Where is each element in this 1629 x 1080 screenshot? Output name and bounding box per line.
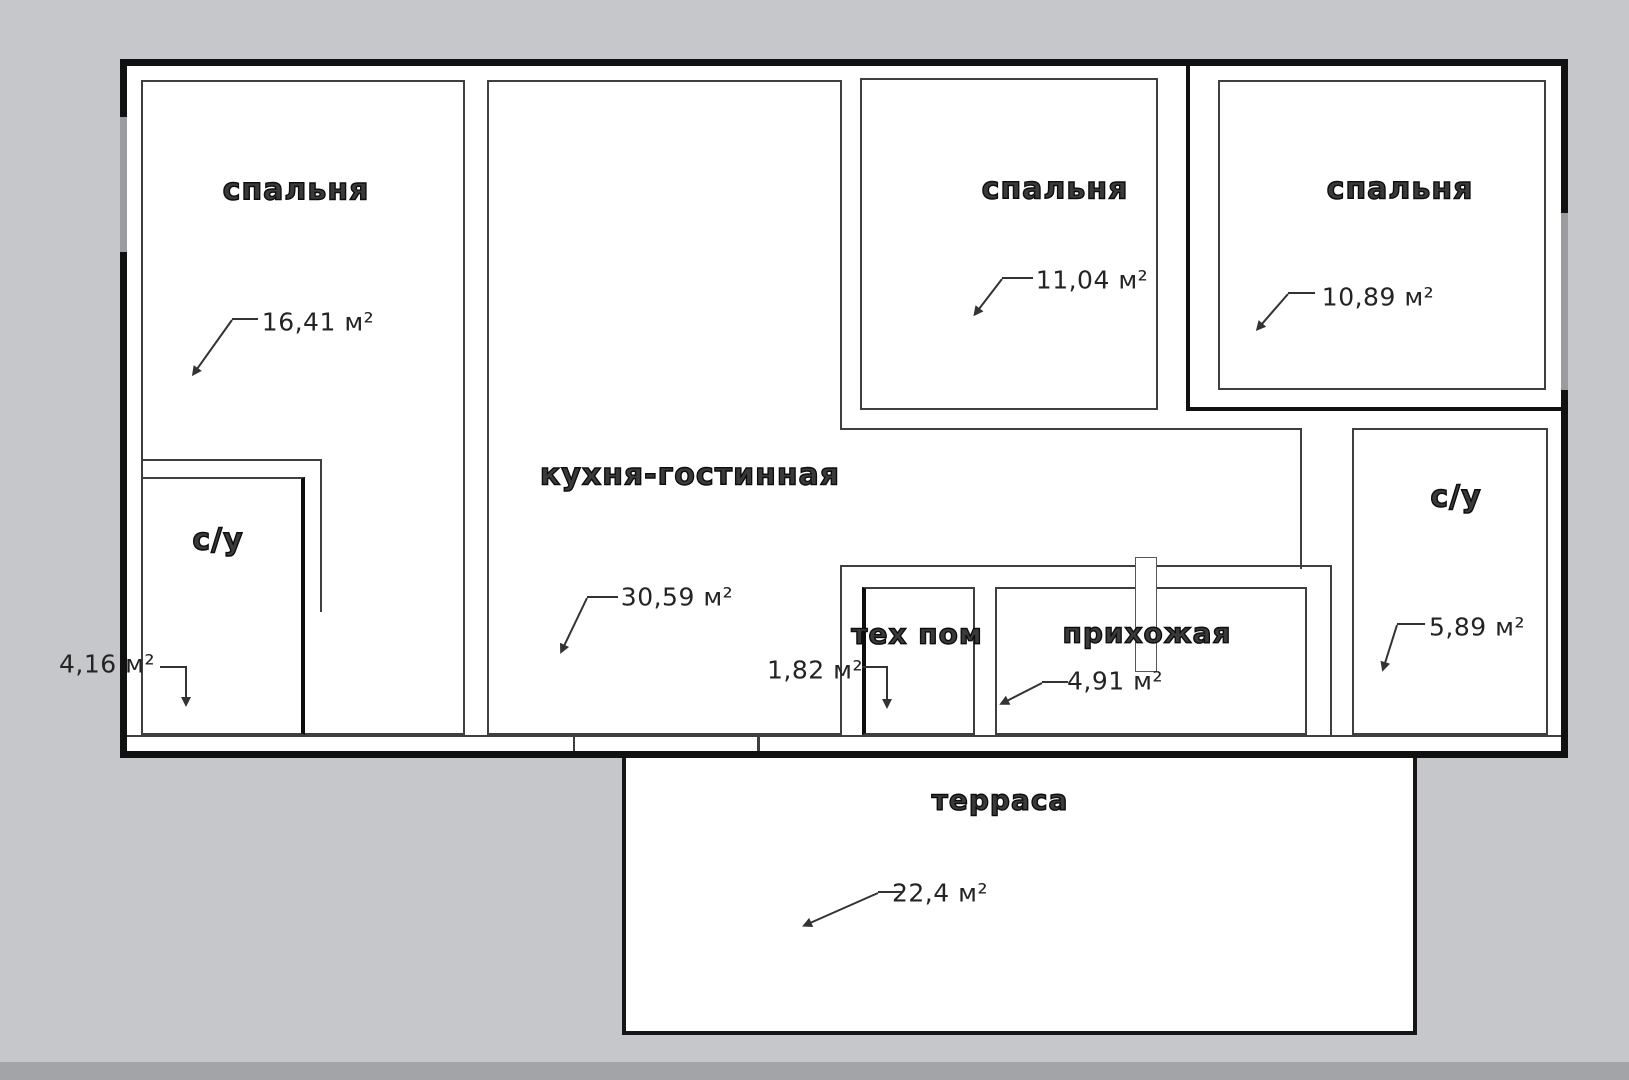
room-label-terrace: терраса: [932, 784, 1069, 817]
area-label-kitchen-living: 30,59 м²: [621, 583, 733, 612]
room-label-bathroom-2: с/у: [1430, 480, 1481, 515]
room-label-kitchen-living: кухня-гостинная: [540, 458, 840, 493]
bedroom-3-thick-wall-left: [1186, 66, 1190, 407]
room-label-bedroom-1: спальня: [223, 173, 370, 208]
leader-line-bathroom-2: [1397, 623, 1425, 625]
area-label-bedroom-2: 11,04 м²: [1036, 266, 1148, 295]
room-bathroom-1: [141, 477, 305, 735]
terrace-door-jamb-left: [573, 735, 575, 751]
leader-line-hallway: [1042, 681, 1068, 683]
floor-plan-page: { "plan": { "type": "apartment-floor-pla…: [0, 0, 1629, 1080]
room-label-tech: тех пом: [851, 618, 983, 651]
window-right-wall: [1561, 213, 1568, 390]
area-label-bathroom-2: 5,89 м²: [1429, 613, 1525, 642]
room-bedroom-3: [1218, 80, 1546, 390]
leader-line-bedroom-1: [232, 318, 258, 320]
leader-arrow-tech: [886, 668, 888, 700]
area-label-bedroom-3: 10,89 м²: [1322, 283, 1434, 312]
area-label-hallway: 4,91 м²: [1067, 667, 1163, 696]
room-label-bedroom-2: спальня: [982, 172, 1129, 207]
exterior-wall-right: [1561, 59, 1568, 758]
hallway-door-leaf: [1135, 557, 1157, 672]
bottom-shade-strip: [0, 1062, 1629, 1080]
room-label-bedroom-3: спальня: [1327, 172, 1474, 207]
area-label-tech: 1,82 м²: [767, 656, 863, 685]
bedroom-3-thick-wall-bottom: [1186, 407, 1561, 411]
room-tech: [862, 587, 975, 735]
room-bedroom-2: [860, 78, 1158, 410]
corridor-line-top: [842, 428, 1300, 430]
area-label-bathroom-1: 4,16 м²: [59, 650, 155, 679]
room-kitchen-living: [487, 80, 842, 735]
leader-arrow-bathroom-1: [185, 668, 187, 698]
room-bathroom-2: [1352, 428, 1548, 735]
leader-line-terrace: [878, 891, 902, 893]
right-corridor-line: [1330, 567, 1332, 735]
bottom-wall-inner-line: [127, 735, 1561, 737]
room-label-hallway: прихожая: [1062, 617, 1231, 650]
corridor-line-bottom: [842, 565, 1332, 567]
window-left-wall: [120, 117, 127, 252]
exterior-wall-top: [120, 59, 1568, 66]
leader-line-bedroom-3: [1288, 292, 1315, 294]
exterior-wall-bottom: [120, 751, 1568, 758]
terrace-door-jamb-right: [757, 735, 760, 751]
corridor-line-right: [1300, 428, 1302, 569]
area-label-terrace: 22,4 м²: [892, 879, 988, 908]
room-label-bathroom-1: с/у: [192, 523, 243, 558]
kitchen-corridor-opening: [835, 430, 851, 565]
leader-line-bathroom-1: [160, 666, 187, 668]
bathroom-1-outer-line-right: [320, 459, 322, 612]
leader-line-bedroom-2: [1002, 277, 1033, 279]
area-label-bedroom-1: 16,41 м²: [262, 308, 374, 337]
bathroom-1-outer-line-top: [141, 459, 322, 461]
leader-line-tech: [862, 666, 888, 668]
leader-line-kitchen-living: [587, 596, 618, 598]
